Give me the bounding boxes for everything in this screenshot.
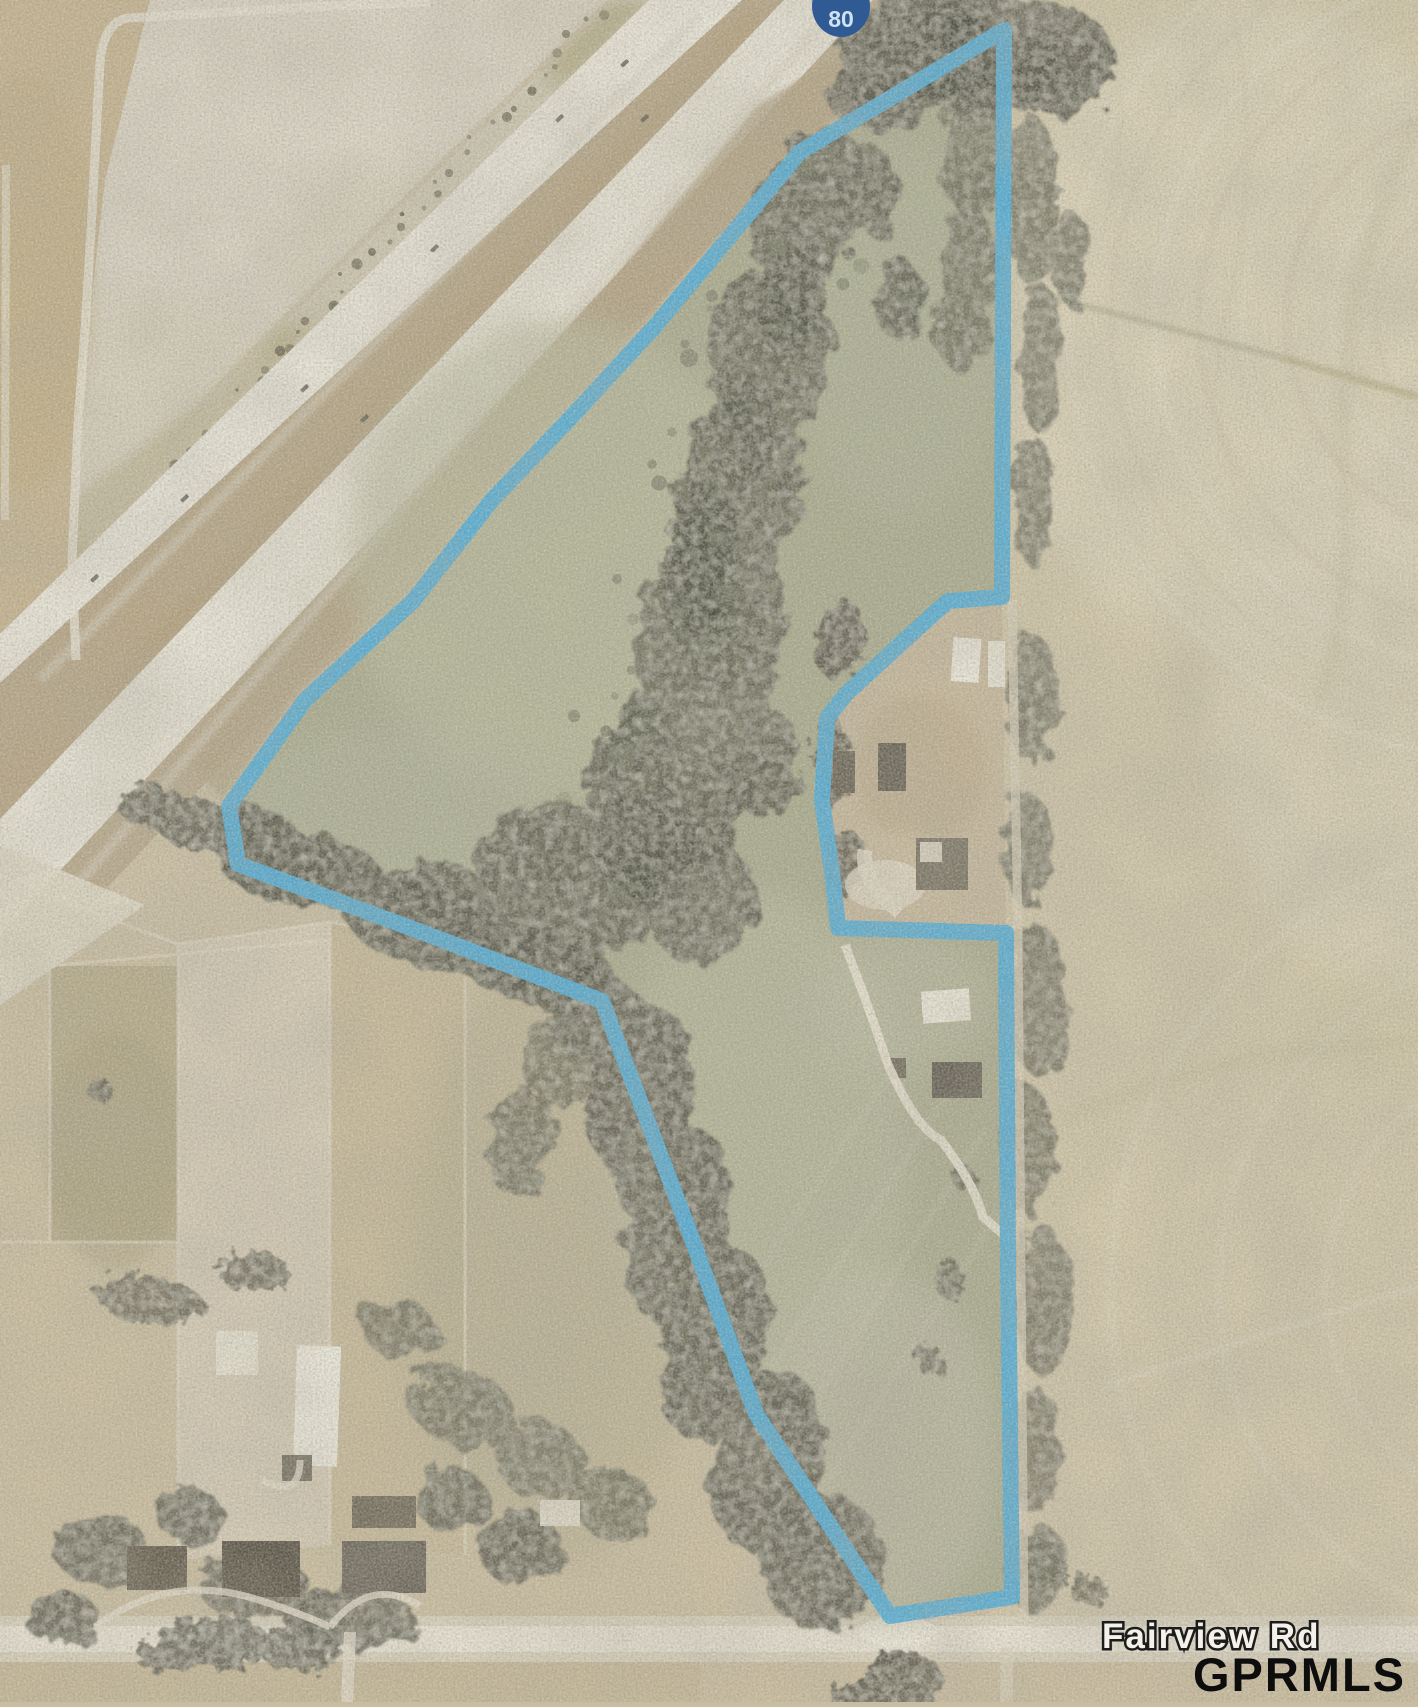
- svg-text:80: 80: [828, 6, 854, 32]
- svg-text:GPRMLS: GPRMLS: [1193, 1648, 1406, 1701]
